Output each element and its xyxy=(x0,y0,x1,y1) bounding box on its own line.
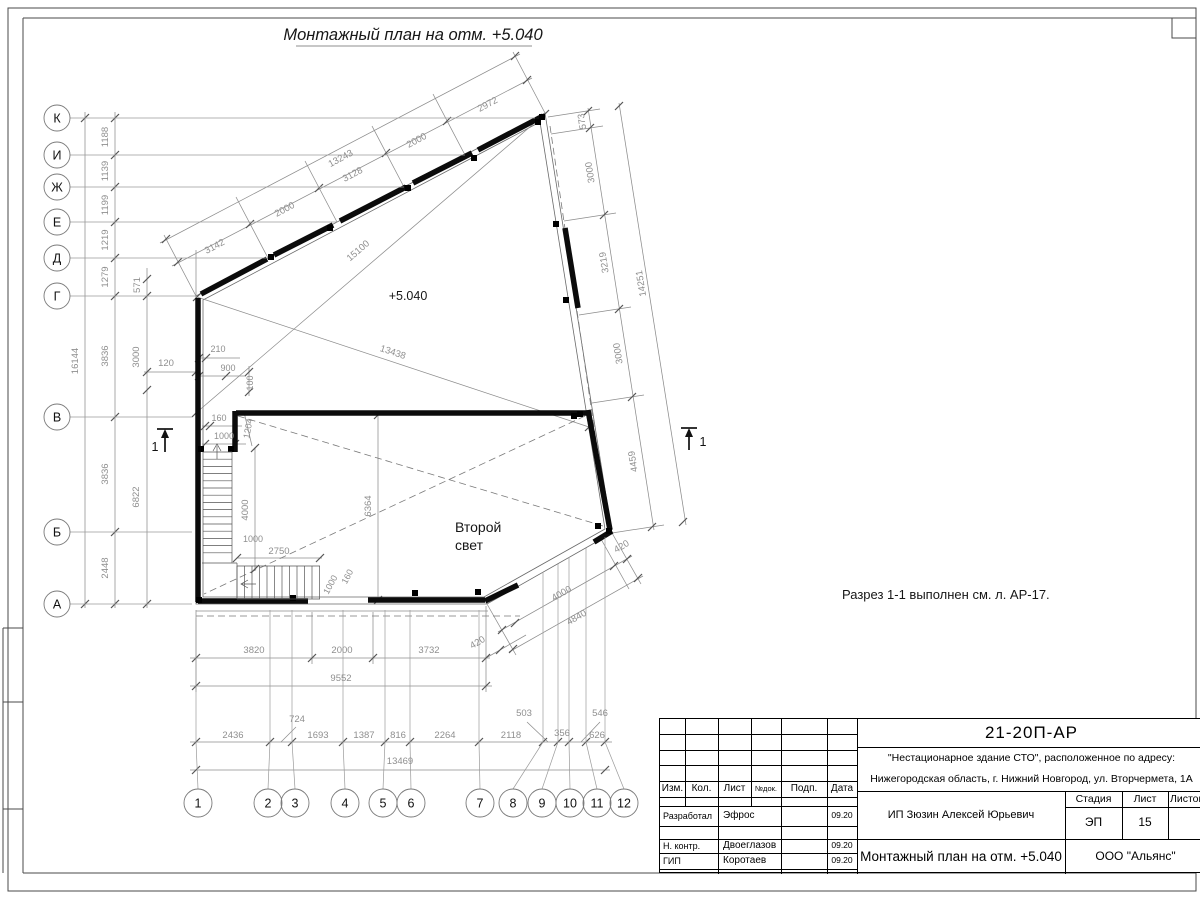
axis-leader-5 xyxy=(383,742,385,789)
tb-name-efros: Эфрос xyxy=(720,806,783,826)
dim-grid-overall: 13469 xyxy=(387,756,413,767)
mounting-plate xyxy=(539,114,545,120)
tb-name-dvoeglazov: Двоеглазов xyxy=(720,839,784,853)
mounting-plate xyxy=(412,590,418,596)
axis-bubble-label-В: В xyxy=(53,411,61,425)
mounting-plate xyxy=(606,528,612,534)
stair-direction-arrow xyxy=(241,580,256,588)
dim-bottom-overall: 9552 xyxy=(330,673,351,684)
dim: 13438 xyxy=(379,343,408,362)
wall-segment xyxy=(588,410,610,530)
dim-tick xyxy=(623,555,631,563)
dim-line xyxy=(236,197,268,258)
mounting-plate xyxy=(198,446,204,452)
dim: 1204 xyxy=(241,418,254,439)
dim-tick xyxy=(634,574,642,582)
tb-sheet-number: 15 xyxy=(1122,807,1168,839)
wall-segment xyxy=(201,259,267,294)
dim: 2264 xyxy=(434,730,455,741)
tb-client: ИП Зюзин Алексей Юрьевич xyxy=(857,791,1065,839)
dim: 420 xyxy=(468,634,487,651)
dim: 160 xyxy=(211,413,226,423)
stair-up-arrow xyxy=(213,444,221,459)
axis-leader-11 xyxy=(586,742,597,789)
page-title: Монтажный план на отм. +5.040 xyxy=(283,26,543,44)
mounting-plate xyxy=(571,413,577,419)
dim: 6364 xyxy=(363,495,374,516)
mounting-plate xyxy=(471,155,477,161)
dim-line xyxy=(564,213,616,221)
tb-date-3: 09.20 xyxy=(827,853,857,869)
wall-segment xyxy=(565,228,578,308)
dim: 15100 xyxy=(345,238,372,264)
section-mark-left xyxy=(157,429,173,452)
axis-leader-1 xyxy=(196,742,198,789)
tb-project-line2: Нижегородская область, г. Нижний Новгоро… xyxy=(857,767,1200,791)
tb-project-line1: "Нестационарное здание СТО", расположенн… xyxy=(857,747,1200,769)
dim: 120 xyxy=(158,358,174,369)
dim-tick xyxy=(174,258,182,266)
tb-name-korotaev: Коротаев xyxy=(720,853,784,869)
tb-stage-label: Стадия xyxy=(1065,791,1122,807)
dashed-line xyxy=(204,416,585,594)
axis-leader-9 xyxy=(542,742,558,789)
axis-leader-12 xyxy=(605,742,624,789)
tb-header-ndok: №док. xyxy=(751,781,781,797)
dim: 1139 xyxy=(100,161,111,181)
dim-line xyxy=(592,395,644,403)
axis-bubble-label-11: 11 xyxy=(591,797,604,811)
tb-drawing-title: Монтажный план на отм. +5.040 xyxy=(857,839,1065,874)
axis-bubble-label-8: 8 xyxy=(510,797,517,811)
mounting-plate xyxy=(475,589,481,595)
dim: 3000 xyxy=(583,161,597,184)
axis-bubble-label-3: 3 xyxy=(292,797,299,811)
axis-bubble-label-К: К xyxy=(53,112,61,126)
axis-leader-3 xyxy=(292,742,295,789)
dim-line xyxy=(486,635,526,658)
dim: 3142 xyxy=(203,237,227,257)
frame-corner-box xyxy=(1172,18,1196,38)
dim: 420 xyxy=(612,538,631,555)
dim: 626 xyxy=(589,730,605,741)
dim: 3128 xyxy=(341,165,365,185)
section-mark-right xyxy=(681,428,697,450)
dim-line xyxy=(160,54,520,243)
tb-role-razrabotal: Разработал xyxy=(660,806,721,826)
drawing-sheet: Монтажный план на отм. +5.040 КИЖЕДГВБА1… xyxy=(0,0,1200,900)
dim-tick xyxy=(523,76,531,84)
dim: 1693 xyxy=(307,730,328,741)
room-label-line2: свет xyxy=(455,537,484,553)
tb-doc-code: 21-20П-АР xyxy=(857,719,1200,747)
dim: 900 xyxy=(220,363,235,373)
axis-bubble-label-Е: Е xyxy=(53,216,61,230)
dim: 3836 xyxy=(100,345,111,366)
axis-bubble-label-Г: Г xyxy=(54,290,61,304)
dim: 2750 xyxy=(268,546,289,557)
dim: 356 xyxy=(554,728,570,739)
axis-bubble-label-Ж: Ж xyxy=(51,181,63,195)
mounting-plate xyxy=(577,411,583,417)
dim: 1219 xyxy=(100,229,111,250)
tb-header-podp: Подп. xyxy=(781,781,827,797)
tb-header-izm: Изм. xyxy=(660,781,685,797)
dim: 2972 xyxy=(476,95,500,115)
tb-sheets-label: Листов xyxy=(1168,791,1200,807)
dim: 2000 xyxy=(331,645,352,656)
mounting-plate xyxy=(405,185,411,191)
axis-leader-2 xyxy=(268,742,270,789)
tb-stage-value: ЭП xyxy=(1065,807,1122,839)
tb-sheet-label: Лист xyxy=(1122,791,1168,807)
dim: 4459 xyxy=(626,450,640,473)
axis-bubble-label-2: 2 xyxy=(265,797,272,811)
dim-tick xyxy=(162,235,170,243)
dim-tick xyxy=(496,646,504,654)
dim: 1000 xyxy=(214,431,234,441)
mounting-plate xyxy=(327,225,333,231)
tb-company: ООО "Альянс" xyxy=(1065,839,1200,874)
dim-tick xyxy=(509,645,517,653)
mounting-plate xyxy=(228,446,234,452)
section-note: Разрез 1-1 выполнен см. л. АР-17. xyxy=(842,587,1050,602)
dim-line xyxy=(433,94,465,155)
dim: 3000 xyxy=(131,346,142,367)
dim: 2118 xyxy=(501,730,521,741)
wall-segment xyxy=(274,225,333,255)
dim: 4000 xyxy=(550,584,574,604)
tb-role-gip: ГИП xyxy=(660,853,721,869)
axis-bubble-label-Д: Д xyxy=(53,252,62,266)
axis-bubble-label-4: 4 xyxy=(342,797,349,811)
dim: 3219 xyxy=(597,251,611,274)
dim-line xyxy=(164,235,196,296)
axis-bubble-label-6: 6 xyxy=(408,797,415,811)
title-block: Изм. Кол. Лист №док. Подп. Дата Разработ… xyxy=(659,718,1200,873)
axis-leader-4 xyxy=(343,742,345,789)
mounting-plate xyxy=(290,595,296,601)
section-mark-left-label: 1 xyxy=(152,440,159,454)
dim-right-overall: 14251 xyxy=(634,269,649,297)
dim: 3000 xyxy=(611,342,625,365)
dim-line xyxy=(548,109,600,117)
axis-bubble-label-10: 10 xyxy=(563,797,577,811)
dim-tick xyxy=(610,562,618,570)
dim: 724 xyxy=(289,714,305,725)
mounting-plate xyxy=(553,221,559,227)
dim-line xyxy=(612,525,664,533)
dim: 1279 xyxy=(100,266,111,287)
dim: 816 xyxy=(390,730,406,741)
tb-header-kol: Кол. xyxy=(685,781,718,797)
mounting-plate xyxy=(196,597,202,603)
wall-segment xyxy=(340,187,406,221)
dim: 546 xyxy=(592,708,608,719)
dim: 503 xyxy=(516,708,532,719)
mounting-plate xyxy=(595,523,601,529)
dim: 571 xyxy=(132,277,143,293)
wall-segment xyxy=(413,153,472,183)
axis-bubble-label-1: 1 xyxy=(195,797,202,811)
dim-line xyxy=(487,604,516,655)
axis-bubble-label-7: 7 xyxy=(477,797,484,811)
dim: 4000 xyxy=(240,499,251,520)
dim: 1000 xyxy=(243,534,263,544)
dim: 1387 xyxy=(353,730,374,741)
axis-bubble-label-9: 9 xyxy=(539,797,546,811)
axis-bubble-label-12: 12 xyxy=(617,797,631,811)
tb-date-2: 09.20 xyxy=(827,839,857,853)
level-label: +5.040 xyxy=(389,289,428,303)
dim-line xyxy=(579,307,631,315)
dim-tick xyxy=(511,52,519,60)
tb-date-1: 09.20 xyxy=(827,806,857,826)
axis-bubble-label-5: 5 xyxy=(380,797,387,811)
section-mark-right-label: 1 xyxy=(700,435,707,449)
dim-line xyxy=(513,52,545,113)
frame-attachment-boxes xyxy=(3,628,23,873)
dim: 1188 xyxy=(100,127,111,147)
dim-left-overall: 16144 xyxy=(70,348,81,374)
dim: 3836 xyxy=(100,463,111,484)
dim-tick xyxy=(511,619,519,627)
dim-top-overall: 13243 xyxy=(327,148,355,170)
dim: 3732 xyxy=(418,645,439,656)
axis-bubble-label-Б: Б xyxy=(53,526,61,540)
dashed-line xyxy=(238,416,603,526)
dim: 2436 xyxy=(222,730,243,741)
axis-bubble-label-А: А xyxy=(53,598,62,612)
axis-leader-8 xyxy=(513,742,543,789)
dim: 4840 xyxy=(565,608,589,628)
mounting-plate xyxy=(563,297,569,303)
axis-bubble-label-И: И xyxy=(53,149,62,163)
dim: 100 xyxy=(245,375,255,390)
tb-role-nkontr: Н. контр. xyxy=(660,839,721,853)
axis-leader-10 xyxy=(569,742,570,789)
tb-header-data: Дата xyxy=(827,781,857,797)
axis-leader-7 xyxy=(479,742,480,789)
dim: 573 xyxy=(576,113,589,130)
dim: 2448 xyxy=(100,557,111,578)
wall-segment xyxy=(478,116,543,150)
dim: 3820 xyxy=(243,645,264,656)
dim: 160 xyxy=(339,568,355,586)
dim: 6822 xyxy=(131,486,142,507)
diag-dim-15100 xyxy=(196,114,545,413)
dim-line xyxy=(527,722,548,742)
tb-header-list: Лист xyxy=(718,781,751,797)
dim: 210 xyxy=(210,344,225,354)
dim-line xyxy=(305,161,337,222)
dim: 1199 xyxy=(100,195,111,215)
dim-tick xyxy=(498,626,506,634)
room-label-line1: Второй xyxy=(455,519,501,535)
mounting-plate xyxy=(268,254,274,260)
dim-line xyxy=(372,126,404,187)
dim: 1000 xyxy=(321,573,339,595)
